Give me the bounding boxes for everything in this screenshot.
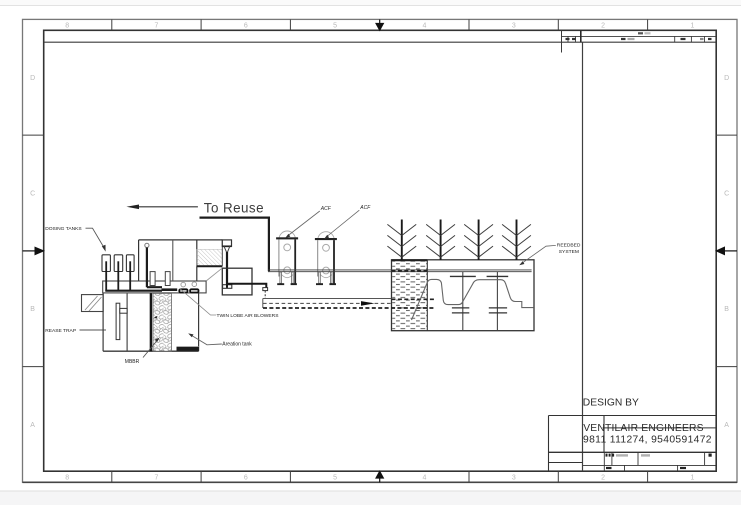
svg-text:6: 6 [244,22,248,29]
svg-text:B: B [724,306,729,313]
svg-text:5: 5 [333,475,337,482]
svg-text:1: 1 [690,22,694,29]
svg-text:8: 8 [65,475,69,482]
svg-text:6: 6 [244,475,248,482]
svg-text:9811 111274, 9540591472: 9811 111274, 9540591472 [583,435,712,446]
svg-text:TWIN LOBE AIR BLOWERS: TWIN LOBE AIR BLOWERS [217,313,280,319]
svg-text:2: 2 [601,22,605,29]
svg-text:MBBR: MBBR [125,359,140,365]
svg-text:D: D [724,75,729,82]
svg-text:B: B [30,306,35,313]
svg-text:1: 1 [690,475,694,482]
svg-text:VENTILAIR ENGINEERS: VENTILAIR ENGINEERS [583,423,704,434]
svg-text:8: 8 [65,22,69,29]
svg-text:DESIGN BY: DESIGN BY [583,398,639,409]
svg-text:ACF: ACF [320,206,332,212]
svg-text:A: A [30,422,35,429]
svg-text:DOSING TANKS: DOSING TANKS [45,226,82,232]
svg-text:SYSTEM: SYSTEM [559,249,579,255]
svg-text:Areation tank: Areation tank [222,342,252,348]
svg-text:REEDBED: REEDBED [557,242,581,248]
svg-text:5: 5 [333,22,337,29]
svg-text:2: 2 [601,475,605,482]
svg-text:3: 3 [512,475,516,482]
svg-text:To Reuse: To Reuse [204,201,264,216]
svg-text:ACF: ACF [359,205,371,211]
svg-text:3: 3 [512,22,516,29]
svg-text:7: 7 [155,475,159,482]
svg-text:D: D [30,75,35,82]
svg-text:C: C [724,191,729,198]
svg-text:4: 4 [422,475,426,482]
svg-text:C: C [30,191,35,198]
svg-text:7: 7 [155,22,159,29]
svg-text:4: 4 [422,22,426,29]
svg-text:REASE TRAP: REASE TRAP [45,328,76,334]
svg-text:A: A [724,422,729,429]
